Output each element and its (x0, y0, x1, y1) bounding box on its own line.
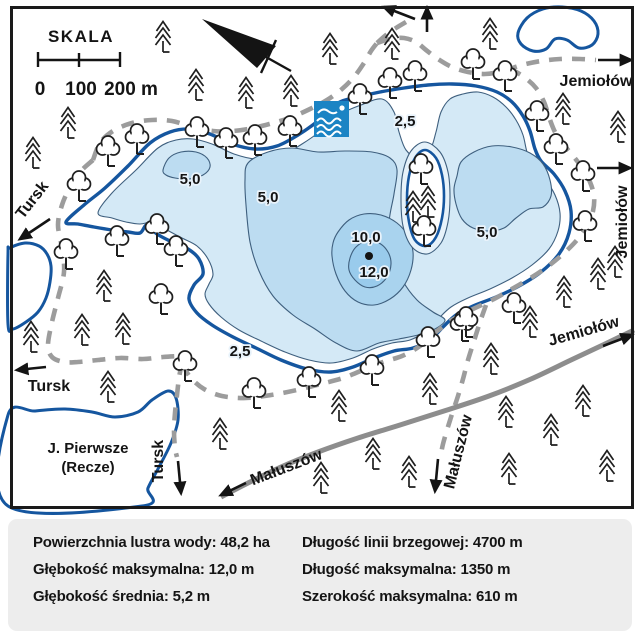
northeast-pond (518, 7, 598, 51)
west-pond (8, 243, 52, 331)
depth-label-12: 12,0 (359, 264, 388, 281)
conifer-tree-icon (101, 372, 116, 403)
scale-tick-200: 200 m (104, 79, 158, 100)
deciduous-tree-icon (361, 355, 384, 385)
deciduous-tree-icon (574, 211, 597, 241)
conifer-tree-icon (116, 314, 131, 345)
label-jemiolow-east: Jemiołów (614, 185, 631, 258)
conifer-tree-icon (61, 108, 76, 139)
stat-max-length: Długość maksymalna: 1350 m (302, 561, 510, 578)
deciduous-tree-icon (379, 68, 402, 98)
stat-surface-area: Powierzchnia lustra wody: 48,2 ha (33, 534, 271, 551)
map-canvas: SKALA 0 100 200 m 2,5 2,5 5,0 5,0 5,0 10… (0, 0, 640, 632)
swimming-spot-icon (314, 101, 349, 137)
arrow-tursk-south (178, 461, 181, 493)
conifer-tree-icon (284, 76, 299, 107)
conifer-tree-icon (385, 29, 400, 60)
label-tursk-west: Tursk (28, 378, 70, 395)
deciduous-tree-icon (503, 293, 526, 323)
stat-avg-depth: Głębokość średnia: 5,2 m (33, 588, 210, 605)
scale-tick-0: 0 (35, 79, 46, 100)
stat-max-depth: Głębokość maksymalna: 12,0 m (33, 561, 254, 578)
deciduous-tree-icon (243, 378, 266, 408)
scale-tick-100: 100 (65, 79, 97, 100)
deciduous-tree-icon (462, 49, 485, 79)
conifer-tree-icon (97, 271, 112, 302)
bathymetric-map-page: SKALA 0 100 200 m 2,5 2,5 5,0 5,0 5,0 10… (0, 0, 640, 632)
stats-panel: Powierzchnia lustra wody: 48,2 ha Głębok… (8, 519, 632, 631)
depth-label-5-east: 5,0 (477, 224, 498, 241)
deciduous-tree-icon (150, 284, 173, 314)
conifer-tree-icon (213, 419, 228, 450)
conifer-tree-icon (323, 34, 338, 65)
conifer-tree-icon (556, 94, 571, 125)
label-tursk-south: Tursk (150, 440, 167, 482)
label-jemiolow-top: Jemiołów (560, 73, 633, 90)
deciduous-tree-icon (545, 134, 568, 164)
conifer-tree-icon (26, 138, 41, 169)
conifer-tree-icon (189, 70, 204, 101)
conifer-tree-icon (239, 78, 254, 109)
conifer-tree-icon (591, 259, 606, 290)
conifer-tree-icon (576, 386, 591, 417)
stat-max-width: Szerokość maksymalna: 610 m (302, 588, 518, 605)
conifer-tree-icon (611, 112, 626, 143)
max-depth-point (365, 252, 373, 260)
deciduous-tree-icon (55, 239, 78, 269)
conifer-tree-icon (75, 315, 90, 346)
label-maluszow-road: Małuszów (248, 446, 325, 489)
conifer-tree-icon (402, 457, 417, 488)
conifer-tree-icon (24, 322, 39, 353)
conifer-tree-icon (600, 451, 615, 482)
conifer-tree-icon (332, 391, 347, 422)
conifer-tree-icon (366, 439, 381, 470)
arrow-tursk-west (17, 367, 46, 370)
conifer-tree-icon (499, 397, 514, 428)
conifer-tree-icon (523, 307, 538, 338)
label-tursk-northwest: Tursk (13, 178, 53, 222)
deciduous-tree-icon (68, 171, 91, 201)
depth-label-2-5-south: 2,5 (230, 343, 251, 360)
conifer-tree-icon (484, 344, 499, 375)
conifer-tree-icon (314, 463, 329, 494)
conifer-tree-icon (156, 22, 171, 53)
depth-label-2-5-north: 2,5 (395, 113, 416, 130)
side-lake-name-line2: (Recze) (61, 459, 114, 476)
depth-label-5-west: 5,0 (180, 171, 201, 188)
conifer-tree-icon (557, 277, 572, 308)
scale-bar-line (38, 52, 120, 67)
deciduous-tree-icon (97, 136, 120, 166)
conifer-tree-icon (502, 454, 517, 485)
conifer-tree-icon (483, 19, 498, 50)
conifer-tree-icon (423, 374, 438, 405)
north-arrow-icon (202, 19, 291, 73)
depth-label-10: 10,0 (351, 229, 380, 246)
arrow-maluszow-path (435, 459, 438, 491)
stat-shoreline-length: Długość linii brzegowej: 4700 m (302, 534, 523, 551)
conifer-tree-icon (544, 415, 559, 446)
scale-bar: SKALA 0 100 200 m (35, 27, 158, 100)
scale-title: SKALA (48, 27, 114, 46)
depth-label-5-center: 5,0 (258, 189, 279, 206)
side-lake-name-line1: J. Pierwsze (48, 440, 129, 457)
deciduous-tree-icon (174, 351, 197, 381)
